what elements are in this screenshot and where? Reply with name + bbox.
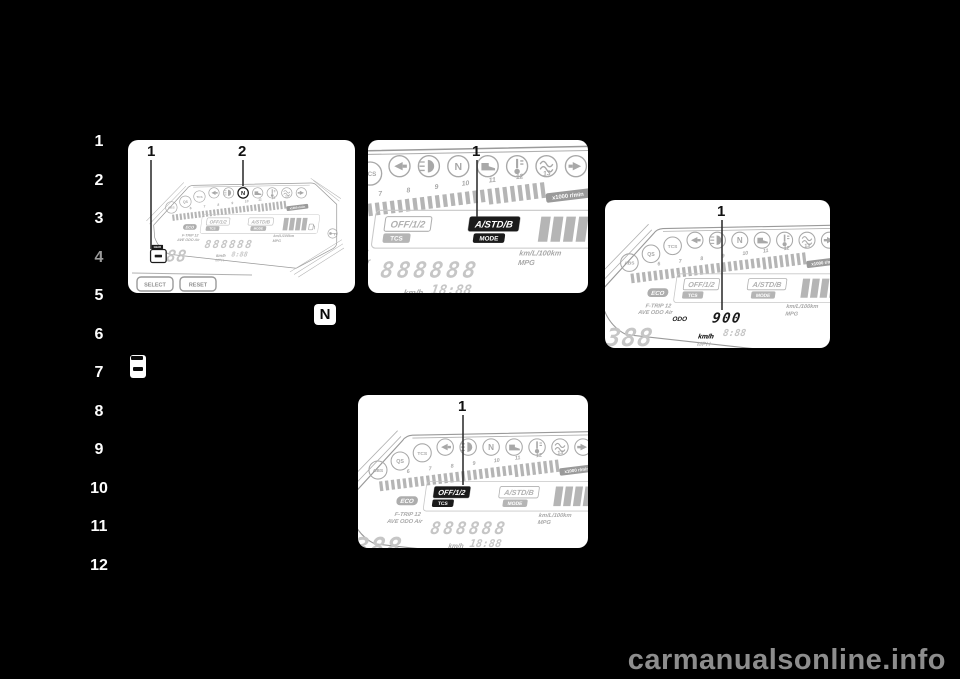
svg-text:OFF/1/2: OFF/1/2	[438, 488, 467, 497]
multifunction-digits: 888888	[379, 258, 481, 284]
svg-text:TCS: TCS	[437, 501, 448, 507]
manual-page: ABS QS TCS N	[0, 0, 960, 679]
sidebar-chapter-number: 6	[84, 326, 114, 344]
sidebar-chapter-number: 3	[84, 210, 114, 228]
figure-panel-odometer: ODO 900 8:88 km/h 1	[605, 200, 830, 348]
inline-neutral-symbol: N	[314, 304, 336, 325]
gear-tag-strip	[131, 356, 143, 360]
svg-text:MODE: MODE	[479, 236, 499, 243]
sidebar-chapter-number: 12	[84, 557, 114, 575]
tcs-level-highlight: OFF/1/2 TCS	[432, 486, 471, 507]
svg-text:N: N	[241, 191, 245, 197]
sidebar-chapter-number: 1	[84, 133, 114, 151]
neutral-lamp-highlight: N	[238, 188, 248, 198]
multifunction-digits: 888888	[204, 238, 255, 251]
odometer-value: 900	[711, 311, 743, 327]
kmh-highlight: km/h	[698, 334, 715, 341]
figure-panel-meter-overview: 888888 8:88 N GEAR	[128, 140, 355, 293]
gear-dash	[133, 367, 143, 371]
sidebar-chapter-number-active: 4	[84, 249, 114, 267]
watermark-text: carmanualsonline.info	[628, 644, 946, 677]
drive-mode-highlight: A/STD/B MODE	[466, 217, 520, 243]
sidebar-chapter-number: 10	[84, 480, 114, 498]
callout-number-1: 1	[472, 143, 480, 160]
clock-display: 18:88	[430, 282, 473, 293]
multifunction-digits: 888888	[429, 519, 509, 539]
select-button-label: SELECT	[144, 283, 166, 289]
gear-dash-segment	[155, 255, 162, 258]
sidebar-chapter-number: 5	[84, 287, 114, 305]
clock-display: 18:88	[469, 537, 503, 548]
meter-buttons: SELECT RESET	[132, 273, 252, 291]
clock-display: 8:88	[231, 250, 248, 258]
reset-button-label: RESET	[189, 283, 208, 289]
clock-display: 8:88	[722, 328, 747, 339]
odo-label: ODO	[672, 316, 688, 323]
callout-number-1: 1	[147, 143, 155, 160]
callout-number-2: 2	[238, 143, 246, 160]
figure-panel-drive-mode: 888888 18:88 A/STD/B MODE 1	[368, 140, 588, 293]
callout-number-1: 1	[717, 203, 725, 220]
sidebar-chapter-number: 8	[84, 403, 114, 421]
inline-gear-display-symbol	[130, 355, 146, 378]
svg-text:A/STD/B: A/STD/B	[473, 220, 513, 231]
sidebar-chapter-number: 2	[84, 172, 114, 190]
sidebar-chapter-number: 9	[84, 441, 114, 459]
sidebar-chapter-number: 11	[84, 518, 114, 536]
callout-number-1: 1	[458, 398, 466, 415]
gear-tag: GEAR	[154, 245, 162, 249]
figure-panel-tcs: 888888 18:88 OFF/1/2 TCS 1	[358, 395, 588, 548]
sidebar-chapter-number: 7	[84, 364, 114, 382]
